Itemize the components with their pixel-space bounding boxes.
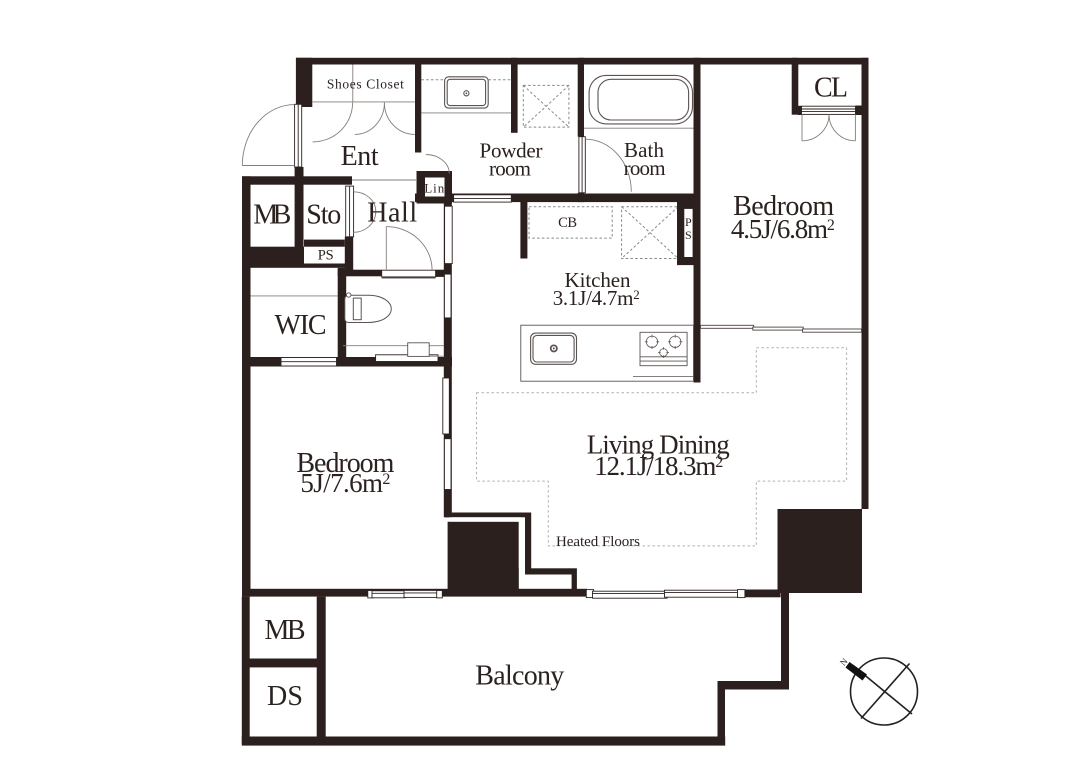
- svg-text:room: room: [489, 157, 531, 181]
- svg-text:Shoes Closet: Shoes Closet: [327, 76, 404, 91]
- svg-text:MB: MB: [265, 615, 306, 646]
- svg-text:CB: CB: [558, 215, 577, 231]
- svg-text:12.1J/18.3m2: 12.1J/18.3m2: [594, 451, 723, 481]
- svg-text:room: room: [624, 156, 666, 180]
- svg-text:S: S: [685, 228, 692, 242]
- svg-text:Heated Floors: Heated Floors: [556, 534, 640, 550]
- svg-text:DS: DS: [267, 681, 303, 712]
- svg-text:Ent: Ent: [341, 141, 379, 172]
- svg-text:CL: CL: [814, 73, 848, 104]
- svg-text:Balcony: Balcony: [475, 661, 564, 692]
- svg-text:5J/7.6m2: 5J/7.6m2: [300, 468, 390, 498]
- svg-text:4.5J/6.8m2: 4.5J/6.8m2: [731, 214, 835, 244]
- svg-text:3.1J/4.7m2: 3.1J/4.7m2: [553, 286, 640, 310]
- svg-text:Sto: Sto: [306, 199, 341, 230]
- svg-text:P: P: [685, 215, 692, 229]
- svg-text:WIC: WIC: [275, 310, 327, 341]
- svg-text:PS: PS: [318, 247, 334, 263]
- svg-text:Lin: Lin: [424, 180, 445, 195]
- svg-text:MB: MB: [253, 199, 291, 230]
- svg-text:Hall: Hall: [367, 197, 417, 228]
